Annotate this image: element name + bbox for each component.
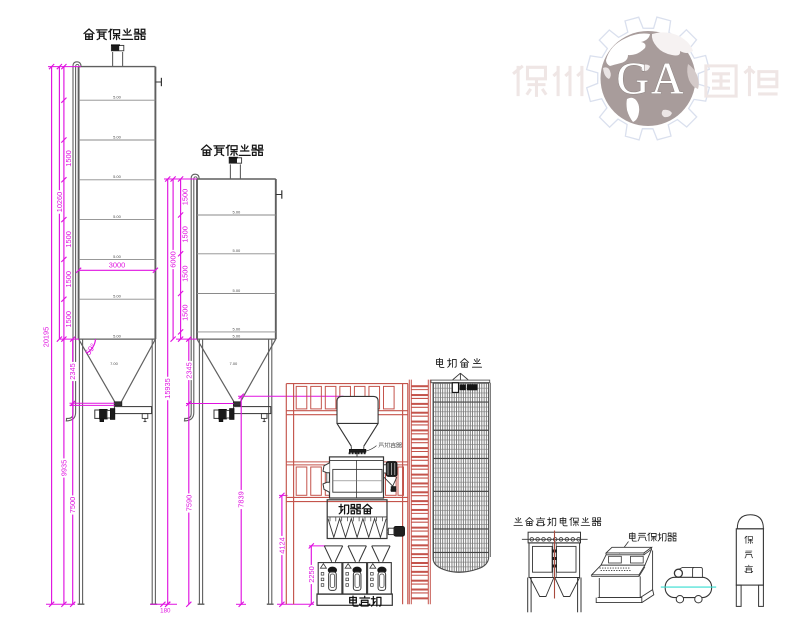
svg-text:10260: 10260 <box>55 192 64 213</box>
svg-text:7500: 7500 <box>68 497 77 513</box>
svg-text:2345: 2345 <box>184 362 193 378</box>
svg-text:1500: 1500 <box>64 150 73 166</box>
svg-text:15935: 15935 <box>163 378 172 399</box>
svg-text:1500: 1500 <box>181 304 190 320</box>
svg-text:5.00: 5.00 <box>113 95 122 100</box>
svg-text:5.00: 5.00 <box>233 334 242 339</box>
svg-text:9935: 9935 <box>59 460 68 476</box>
svg-text:5.00: 5.00 <box>233 248 242 253</box>
svg-text:2250: 2250 <box>307 566 316 582</box>
svg-text:7839: 7839 <box>237 491 246 507</box>
svg-text:5.00: 5.00 <box>113 294 122 299</box>
svg-text:1500: 1500 <box>181 226 190 242</box>
svg-text:5.00: 5.00 <box>113 134 122 139</box>
svg-text:5.00: 5.00 <box>233 326 242 331</box>
svg-text:5.00: 5.00 <box>113 174 122 179</box>
svg-text:5.00: 5.00 <box>113 214 122 219</box>
svg-text:1500: 1500 <box>181 265 190 281</box>
svg-text:7590: 7590 <box>184 495 193 511</box>
svg-text:1500: 1500 <box>181 189 190 205</box>
svg-text:180: 180 <box>160 608 171 615</box>
svg-text:20195: 20195 <box>42 327 51 348</box>
svg-text:7.00: 7.00 <box>110 361 119 366</box>
svg-text:5.00: 5.00 <box>113 254 122 259</box>
svg-text:59°: 59° <box>84 342 98 357</box>
svg-text:5.00: 5.00 <box>233 209 242 214</box>
svg-text:3000: 3000 <box>109 260 125 269</box>
svg-text:1500: 1500 <box>64 231 73 247</box>
svg-text:GA: GA <box>617 54 686 104</box>
svg-text:5.00: 5.00 <box>233 288 242 293</box>
svg-text:1500: 1500 <box>64 311 73 327</box>
svg-text:6000: 6000 <box>169 251 178 267</box>
svg-text:1500: 1500 <box>64 271 73 287</box>
svg-text:2345: 2345 <box>68 363 77 379</box>
svg-text:7.00: 7.00 <box>230 361 239 366</box>
svg-text:4124: 4124 <box>277 537 286 553</box>
svg-text:5.00: 5.00 <box>113 334 122 339</box>
